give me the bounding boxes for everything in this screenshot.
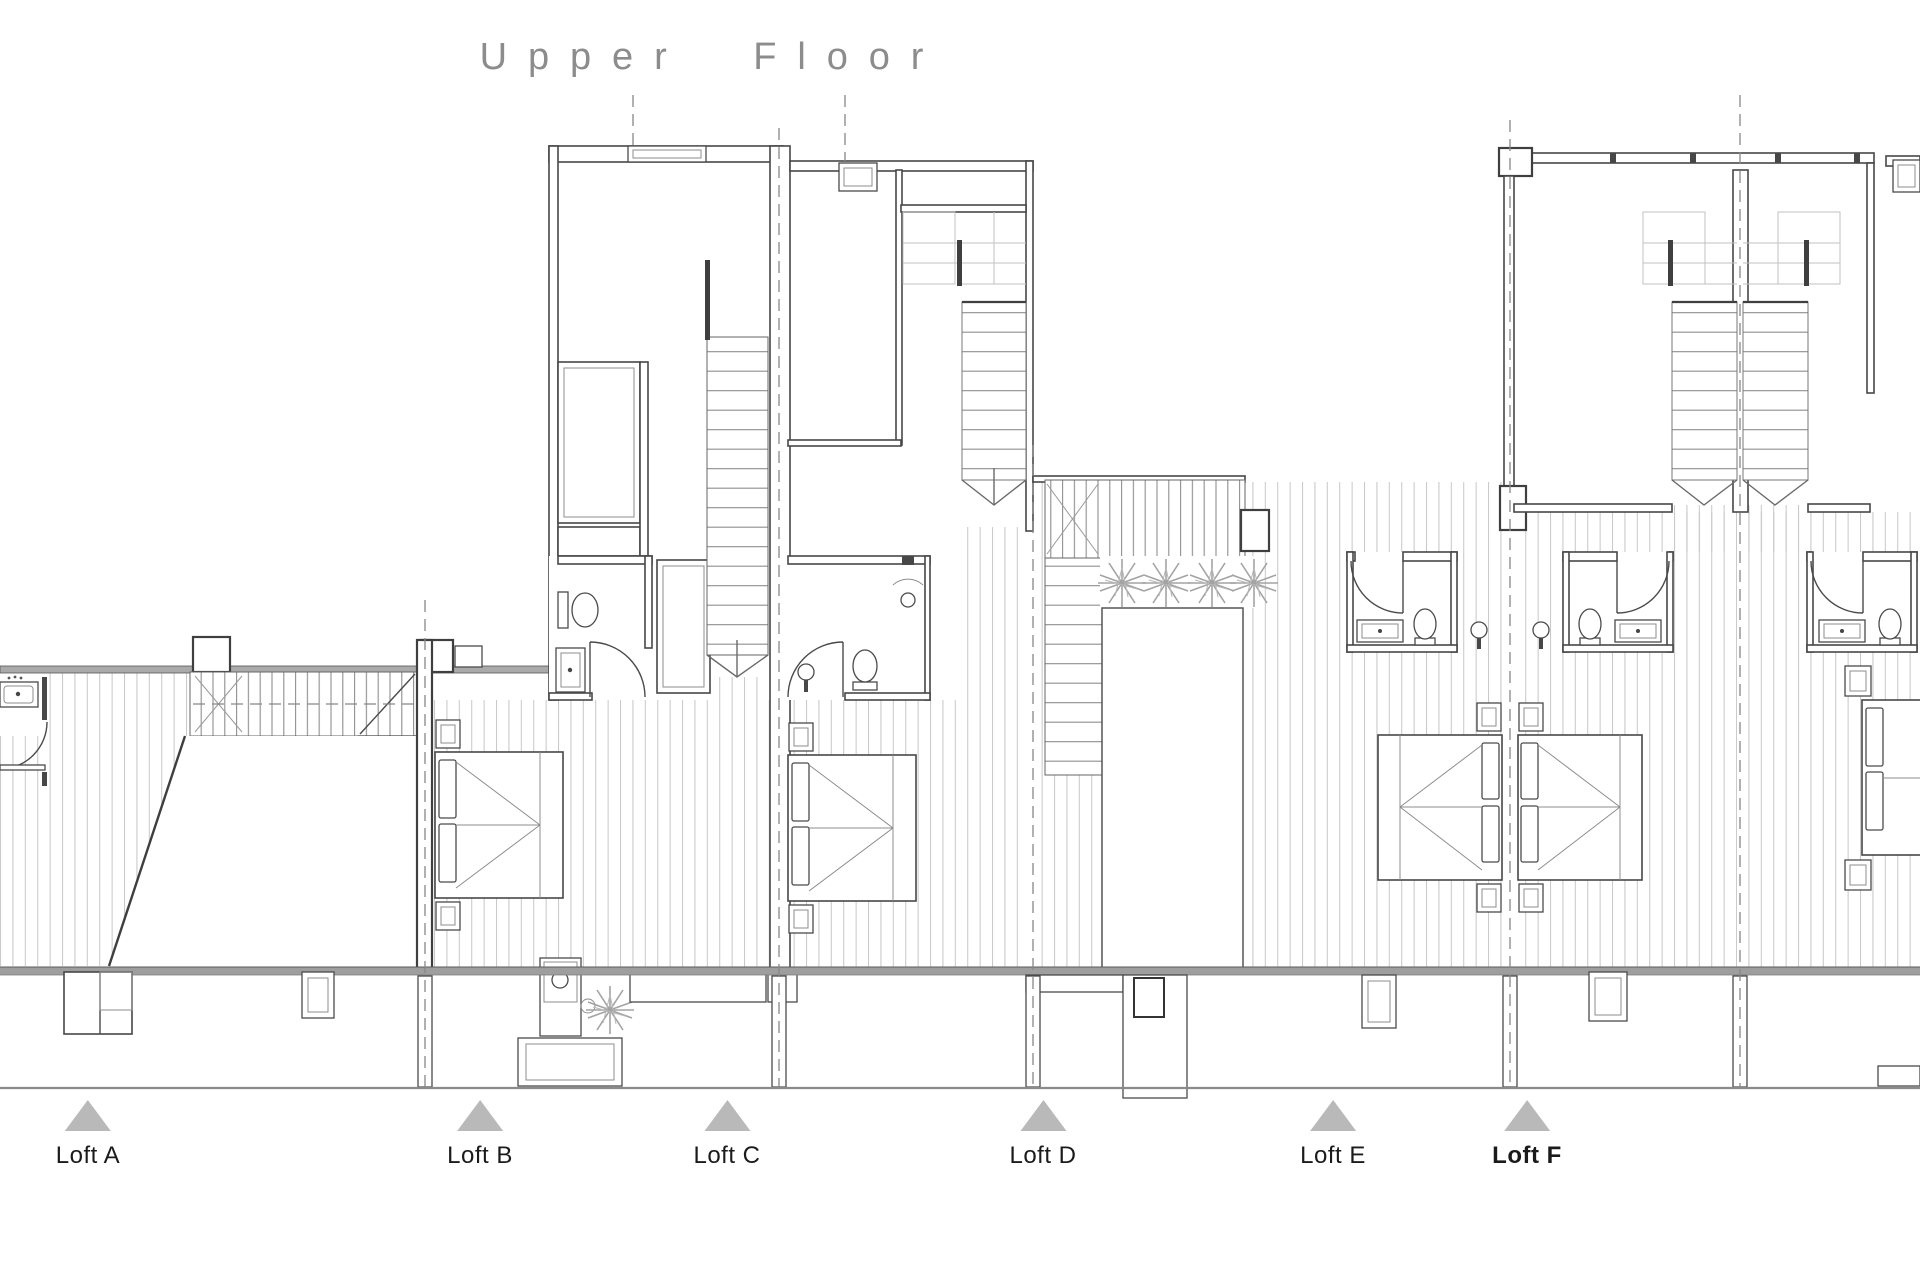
stair-icon [903, 212, 1026, 505]
loft-label-e: Loft E [1300, 1142, 1366, 1170]
loft-marker-a: Loft A [56, 1100, 120, 1170]
party-wall-b-c [770, 146, 790, 972]
loft-marker-e: Loft E [1300, 1100, 1366, 1170]
toilet-icon [1879, 609, 1901, 645]
bed-icon [435, 720, 563, 930]
party-wall-a-b [417, 640, 432, 972]
nightstand-icon [436, 902, 460, 930]
nightstand-icon [1477, 703, 1501, 731]
party-wall-d-e [1504, 176, 1514, 506]
window-icon [455, 646, 482, 667]
sink-icon [1615, 620, 1661, 642]
loft-label-d: Loft D [1009, 1142, 1076, 1170]
triangle-up-icon [65, 1100, 111, 1131]
nightstand-icon [789, 723, 813, 751]
chimney-column [1123, 975, 1187, 1098]
floor-plan-drawing [0, 0, 1920, 1280]
loft-marker-f: Loft F [1492, 1100, 1562, 1170]
triangle-up-icon [457, 1100, 503, 1131]
duct-box [1241, 510, 1269, 551]
plant-icon [586, 986, 634, 1034]
toilet-icon [1579, 609, 1601, 645]
exterior-wall [1867, 163, 1874, 393]
sink-icon [1819, 620, 1865, 642]
bed-icon [1378, 703, 1502, 912]
wall-stub [42, 677, 47, 720]
bathroom-b [549, 556, 652, 700]
sink-icon [1357, 620, 1403, 642]
nightstand-icon [1845, 860, 1871, 890]
triangle-up-icon [1020, 1100, 1066, 1131]
interior-wall [788, 440, 901, 446]
toilet-icon [853, 650, 877, 690]
window-icon [1893, 160, 1920, 192]
window-icon [839, 163, 877, 191]
bed-icon [788, 723, 916, 933]
foundation-posts [64, 972, 1920, 1098]
wall-post [193, 637, 230, 672]
nightstand-icon [436, 720, 460, 748]
triangle-up-icon [1310, 1100, 1356, 1131]
sink-icon [556, 648, 585, 692]
wardrobe-icon [558, 362, 640, 556]
bathroom-c [788, 556, 930, 700]
step [1878, 1066, 1920, 1086]
wall-post [1499, 148, 1532, 176]
loft-label-f: Loft F [1492, 1142, 1562, 1170]
loft-label-c: Loft C [693, 1142, 760, 1170]
interior-wall [901, 205, 1026, 212]
window-icon [628, 146, 706, 162]
toilet-icon [1414, 609, 1436, 645]
void-opening [1102, 608, 1243, 972]
toilet-icon [558, 592, 598, 628]
nightstand-icon [1519, 703, 1543, 731]
loft-marker-c: Loft C [693, 1100, 760, 1170]
nightstand-icon [1845, 666, 1871, 696]
triangle-up-icon [704, 1100, 750, 1131]
terrace-wall [1808, 504, 1870, 512]
loft-marker-d: Loft D [1009, 1100, 1076, 1170]
floor-plan-page: Upper Floor Loft A Loft B Loft C Loft D … [0, 0, 1920, 1280]
loft-label-b: Loft B [447, 1142, 513, 1170]
exterior-wall [1499, 153, 1874, 163]
interior-wall [640, 362, 648, 556]
stair-icon [705, 260, 768, 677]
terrace-wall [1514, 504, 1672, 512]
triangle-up-icon [1504, 1100, 1550, 1131]
page-title: Upper Floor [480, 36, 945, 79]
closet-icon [657, 560, 710, 693]
nightstand-icon [1477, 884, 1501, 912]
loft-label-a: Loft A [56, 1142, 120, 1170]
nightstand-icon [1519, 884, 1543, 912]
loft-marker-b: Loft B [447, 1100, 513, 1170]
exterior-wall [1026, 161, 1033, 531]
loft-ef-upper-block [1499, 148, 1920, 530]
south-wall-band [0, 967, 1920, 975]
exterior-wall [790, 161, 1033, 171]
bed-icon [1518, 703, 1642, 912]
bathroom-f [1807, 552, 1917, 652]
nightstand-icon [789, 905, 813, 933]
sink-icon [0, 676, 38, 707]
